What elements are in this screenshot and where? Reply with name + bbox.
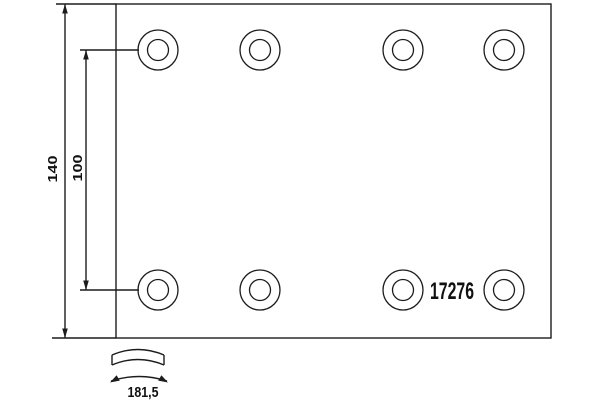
lining-arc-profile-top [112, 350, 164, 356]
overall-height-label: 140 [45, 156, 60, 183]
bolt-hole-inner [393, 40, 414, 61]
bolt-hole-inner [393, 280, 414, 301]
arrow-arc-left-icon [110, 375, 120, 382]
bolt-hole-outer [484, 30, 524, 70]
bolt-hole-inner [494, 40, 515, 61]
hole-spacing-label: 100 [70, 155, 85, 182]
bolt-hole-inner [494, 280, 515, 301]
plate-outline [116, 4, 551, 338]
part-number-label: 17276 [430, 278, 474, 305]
arrow-down-hole-spacing-icon [83, 281, 89, 291]
bolt-holes [138, 30, 524, 310]
bolt-hole-inner [148, 40, 169, 61]
bolt-hole-outer [138, 270, 178, 310]
bolt-hole-outer [138, 30, 178, 70]
arrow-up-overall-height-icon [62, 4, 68, 14]
bolt-hole-inner [250, 40, 271, 61]
arrow-down-overall-height-icon [62, 329, 68, 339]
bolt-hole-outer [383, 270, 423, 310]
arrow-arc-right-icon [158, 375, 168, 382]
bolt-hole-outer [383, 30, 423, 70]
bolt-hole-outer [484, 270, 524, 310]
lining-arc-profile-bottom [112, 360, 164, 366]
bolt-hole-outer [240, 270, 280, 310]
technical-drawing: 140 100 17276 181,5 [0, 0, 600, 400]
drawing-canvas: 140 100 17276 181,5 [0, 0, 600, 400]
bolt-hole-outer [240, 30, 280, 70]
arc-width-label: 181,5 [128, 384, 159, 400]
arrow-up-hole-spacing-icon [83, 50, 89, 60]
bolt-hole-inner [250, 280, 271, 301]
bolt-hole-inner [148, 280, 169, 301]
